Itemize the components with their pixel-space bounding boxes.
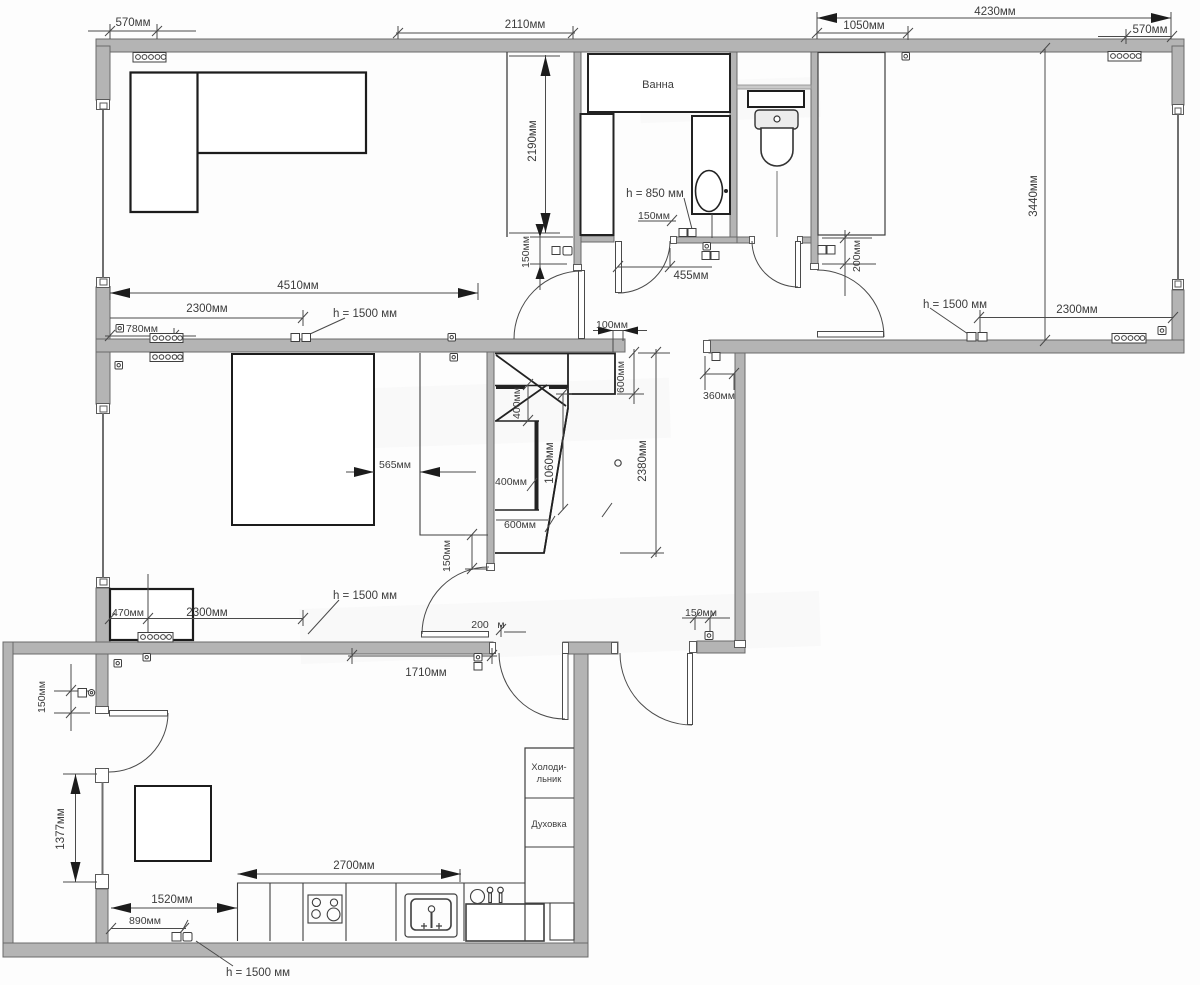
svg-text:2300мм: 2300мм (1056, 304, 1097, 316)
svg-text:h = 1500 мм: h = 1500 мм (333, 590, 397, 602)
svg-text:4510мм: 4510мм (277, 280, 318, 292)
svg-text:570мм: 570мм (1133, 24, 1168, 36)
svg-text:200: 200 (471, 619, 489, 631)
svg-text:h = 1500 мм: h = 1500 мм (226, 967, 290, 979)
svg-text:150мм: 150мм (36, 681, 48, 713)
svg-text:2190мм: 2190мм (527, 120, 539, 161)
svg-text:1060мм: 1060мм (544, 442, 556, 483)
svg-text:455мм: 455мм (674, 270, 709, 282)
svg-text:1710мм: 1710мм (405, 667, 446, 679)
svg-text:h = 850 мм: h = 850 мм (626, 188, 684, 200)
svg-text:565мм: 565мм (379, 459, 411, 471)
svg-text:400мм: 400мм (511, 387, 523, 419)
svg-text:2110мм: 2110мм (505, 19, 546, 31)
svg-text:200мм: 200мм (851, 240, 863, 272)
svg-text:2700мм: 2700мм (333, 860, 374, 872)
svg-text:м: м (497, 619, 504, 631)
svg-text:h = 1500 мм: h = 1500 мм (923, 299, 987, 311)
svg-text:2300мм: 2300мм (186, 607, 227, 619)
svg-text:2300мм: 2300мм (186, 303, 227, 315)
svg-text:100мм: 100мм (596, 319, 628, 331)
svg-text:470мм: 470мм (112, 607, 144, 619)
svg-text:600мм: 600мм (615, 361, 627, 393)
svg-text:2380мм: 2380мм (637, 440, 649, 481)
svg-text:150мм: 150мм (638, 210, 670, 222)
svg-text:150мм: 150мм (441, 540, 453, 572)
svg-text:льник: льник (537, 774, 563, 784)
svg-text:Холоди-: Холоди- (531, 762, 566, 772)
svg-text:Ванна: Ванна (642, 79, 675, 91)
svg-text:600мм: 600мм (504, 519, 536, 531)
svg-text:h = 1500 мм: h = 1500 мм (333, 308, 397, 320)
svg-text:150мм: 150мм (520, 236, 532, 268)
svg-text:1377мм: 1377мм (55, 808, 67, 849)
svg-text:400мм: 400мм (495, 476, 527, 488)
svg-text:Духовка: Духовка (531, 819, 567, 829)
svg-text:570мм: 570мм (116, 17, 151, 29)
svg-text:1050мм: 1050мм (843, 20, 884, 32)
svg-text:4230мм: 4230мм (974, 6, 1015, 18)
svg-text:3440мм: 3440мм (1028, 175, 1040, 216)
svg-text:150мм: 150мм (685, 607, 717, 619)
svg-text:890мм: 890мм (129, 915, 161, 927)
svg-text:1520мм: 1520мм (151, 894, 192, 906)
svg-text:360мм: 360мм (703, 390, 735, 402)
